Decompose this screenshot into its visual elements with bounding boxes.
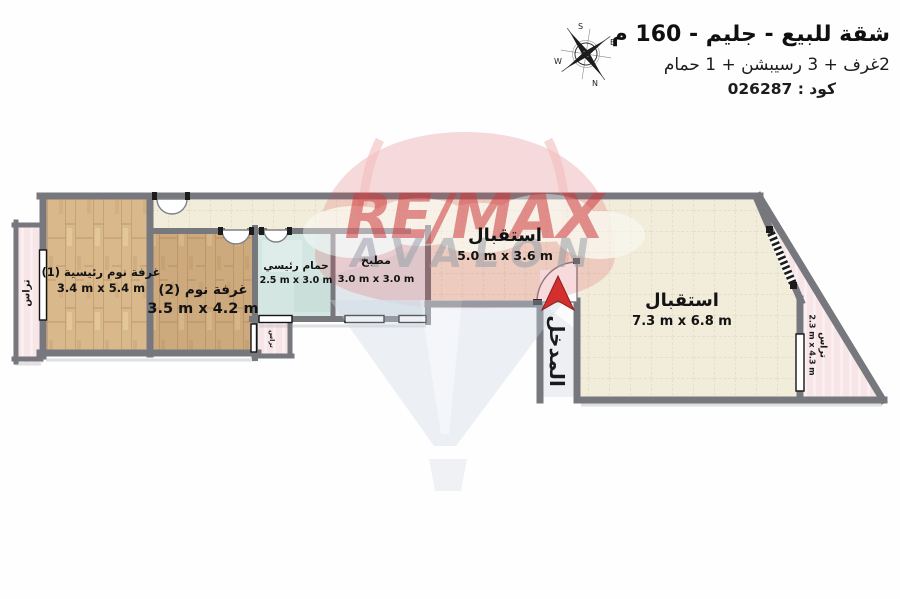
kitchen-label: مطبخ 3.0 m x 3.0 m — [328, 255, 424, 285]
kitchen-shade — [333, 245, 428, 322]
entrance-label: المدخل — [545, 305, 569, 397]
room-dimensions: 3.4 m x 5.4 m — [40, 282, 162, 295]
room-dimensions: 5.0 m x 3.6 m — [444, 249, 566, 263]
door-arc-entrance — [537, 262, 577, 302]
window-master-bedroom — [40, 250, 47, 320]
reception-2-label: استقبال 7.3 m x 6.8 m — [620, 291, 744, 330]
room-dimensions: 3.0 m x 3.0 m — [328, 274, 424, 286]
reception-1-label: استقبال 5.0 m x 3.6 m — [444, 226, 566, 263]
terrace-right-label: تراس 2.3 m x 4.3 m — [808, 295, 829, 395]
terrace-left-label: تراس — [22, 279, 33, 306]
room-dimensions: 3.5 m x 4.2 m — [143, 301, 263, 318]
entrance-corridor-floor — [540, 270, 577, 397]
terrace-small-floor — [254, 322, 291, 356]
entrance-arrow-icon — [542, 276, 574, 310]
bathroom-texture — [294, 278, 330, 312]
remax-logo-text: RE/MAX — [338, 180, 609, 253]
window-bathroom — [259, 316, 292, 323]
room-dimensions: 7.3 m x 6.8 m — [620, 315, 744, 330]
room-name: مطبخ — [328, 255, 424, 268]
master-bedroom-floor — [43, 196, 150, 353]
room-name: غرفة نوم رئيسية (1) — [40, 266, 162, 279]
avalon-logo-text: AVALON — [347, 231, 604, 277]
door-arc-bedroom-2 — [222, 230, 250, 244]
window-slant-hatched — [766, 226, 797, 289]
compass-bottom-label: N — [592, 79, 598, 88]
bedroom-2-floor-tint — [150, 231, 255, 353]
room-name: تراس — [818, 295, 829, 395]
page-title: شقة للبيع - جليم - 160 م — [612, 22, 890, 47]
compass-left-label: W — [554, 57, 562, 66]
floorplan-page: RE/MAX AVALON غرفة نوم رئيسية (1) 3.4 m … — [0, 0, 900, 599]
entrance-corridor-shade — [540, 302, 577, 397]
compass-rose-icon: S N W E — [554, 20, 618, 88]
reception-open-area-floor — [153, 200, 800, 397]
master-bathroom-label: حمام رئيسي 2.5 m x 3.0 m — [248, 260, 344, 287]
kitchen-floor — [333, 231, 428, 322]
bathroom-texture — [262, 240, 302, 272]
bedroom-2-floor — [150, 231, 255, 353]
bedroom-2-label: غرفة نوم (2) 3.5 m x 4.2 m — [143, 283, 263, 317]
master-bedroom-label: غرفة نوم رئيسية (1) 3.4 m x 5.4 m — [40, 266, 162, 295]
master-bathroom-floor — [255, 231, 333, 322]
window-terrace-small — [251, 324, 257, 352]
terrace-right-floor — [764, 204, 881, 397]
window-reception-2 — [796, 334, 804, 391]
room-name: غرفة نوم (2) — [143, 283, 263, 299]
terrace-small-label: تراس — [268, 330, 276, 348]
compass-top-label: S — [578, 22, 583, 31]
door-arc-bathroom — [264, 230, 288, 242]
page-subtitle: 2غرف + 3 رسيبشن + 1 حمام — [664, 55, 890, 75]
room-dimensions: 2.3 m x 4.3 m — [808, 295, 817, 395]
window-kitchen-b — [399, 316, 426, 323]
room-name: استقبال — [444, 226, 566, 247]
compass-right-label: E — [610, 38, 615, 47]
door-arc-master-bedroom — [157, 199, 187, 214]
window-kitchen-a — [345, 316, 384, 323]
room-name: حمام رئيسي — [248, 260, 344, 272]
room-name: استقبال — [620, 291, 744, 312]
listing-code: كود : 026287 — [728, 80, 836, 98]
room-dimensions: 2.5 m x 3.0 m — [248, 276, 344, 287]
terrace-left-floor — [13, 223, 43, 363]
